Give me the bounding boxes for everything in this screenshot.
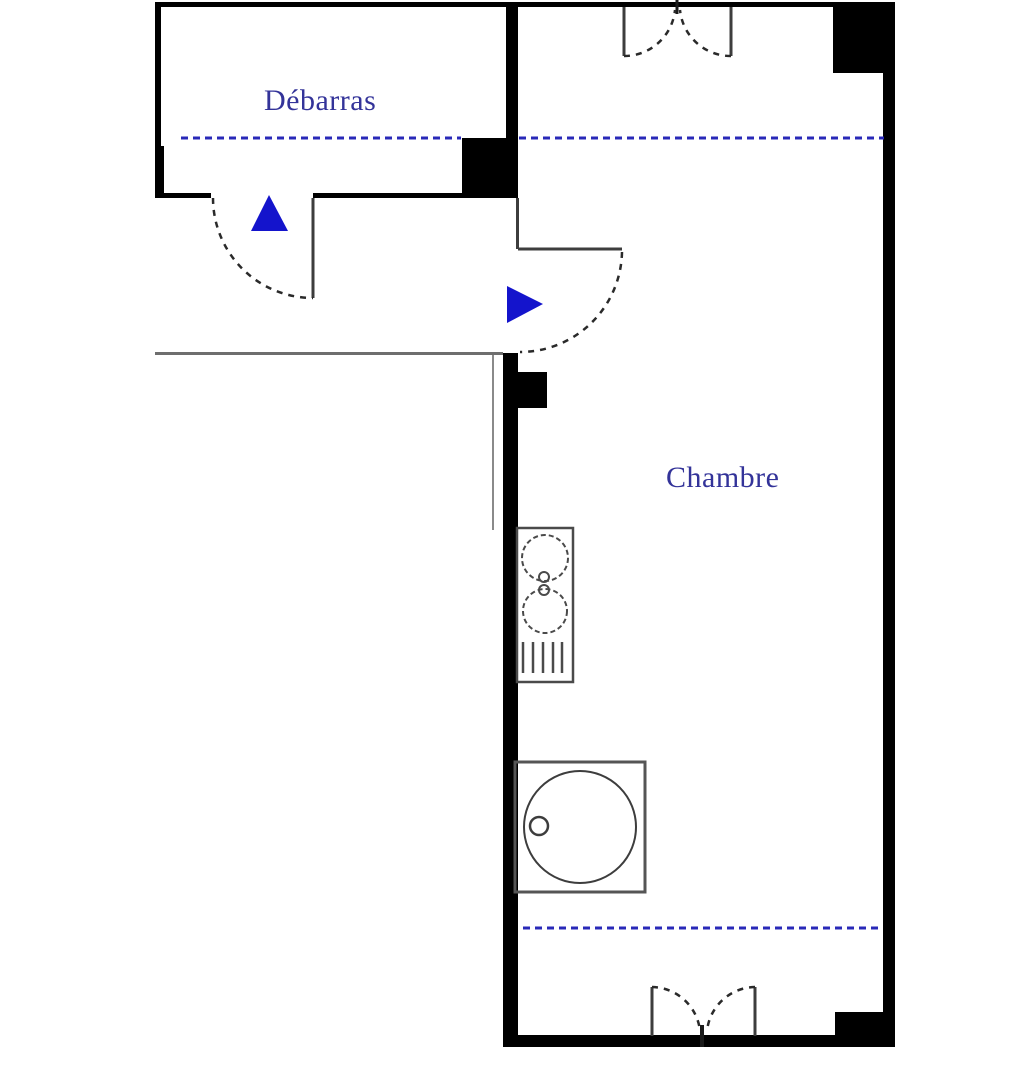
- floor-plan: Débarras Chambre: [0, 0, 1030, 1080]
- door-jamb-wall: [516, 198, 519, 249]
- up-arrow-icon: [251, 195, 288, 231]
- valve-circle: [530, 817, 548, 835]
- right-wall: [883, 2, 895, 1047]
- drainer-lines: [523, 642, 562, 673]
- window-leaf-arc-right: [707, 987, 755, 1031]
- debarras-bottom-wall-left: [155, 193, 211, 198]
- divider-pier-block: [462, 138, 518, 198]
- top-right-corner-block: [833, 2, 892, 73]
- thin-lines: [155, 352, 503, 530]
- washing-machine-icon: [515, 762, 645, 892]
- divider-wall-top: [506, 2, 518, 142]
- window-leaf-arc-right: [680, 10, 731, 56]
- duct-line: [492, 355, 494, 530]
- bottom-wall: [503, 1035, 895, 1047]
- drum-circle: [524, 771, 636, 883]
- floor-plan-drawing: [0, 0, 1030, 1080]
- kitchenette-unit-icon: [517, 528, 573, 682]
- dashed-guide-lines: [181, 138, 884, 928]
- window-leaf-arc-left: [652, 987, 700, 1031]
- chambre-left-wall: [503, 353, 518, 1047]
- hall-boundary-line: [155, 352, 503, 355]
- kitchenette-outline: [517, 528, 573, 682]
- debarras-bottom-wall-right: [313, 193, 463, 198]
- debarras-left-wall-lower: [155, 146, 164, 198]
- room-label-chambre: Chambre: [666, 461, 779, 495]
- debarras-left-wall: [155, 2, 161, 148]
- top-wall: [155, 2, 892, 7]
- right-arrow-icon: [507, 286, 543, 323]
- burner-top: [522, 535, 568, 581]
- wall-pier-bump: [518, 372, 547, 408]
- direction-arrows: [251, 195, 543, 323]
- machine-outline: [515, 762, 645, 892]
- french-window-top: [624, 0, 731, 56]
- window-leaf-arc-left: [624, 10, 675, 56]
- room-label-debarras: Débarras: [264, 84, 376, 118]
- bottom-right-corner-block: [835, 1012, 895, 1036]
- walls: [155, 2, 895, 1047]
